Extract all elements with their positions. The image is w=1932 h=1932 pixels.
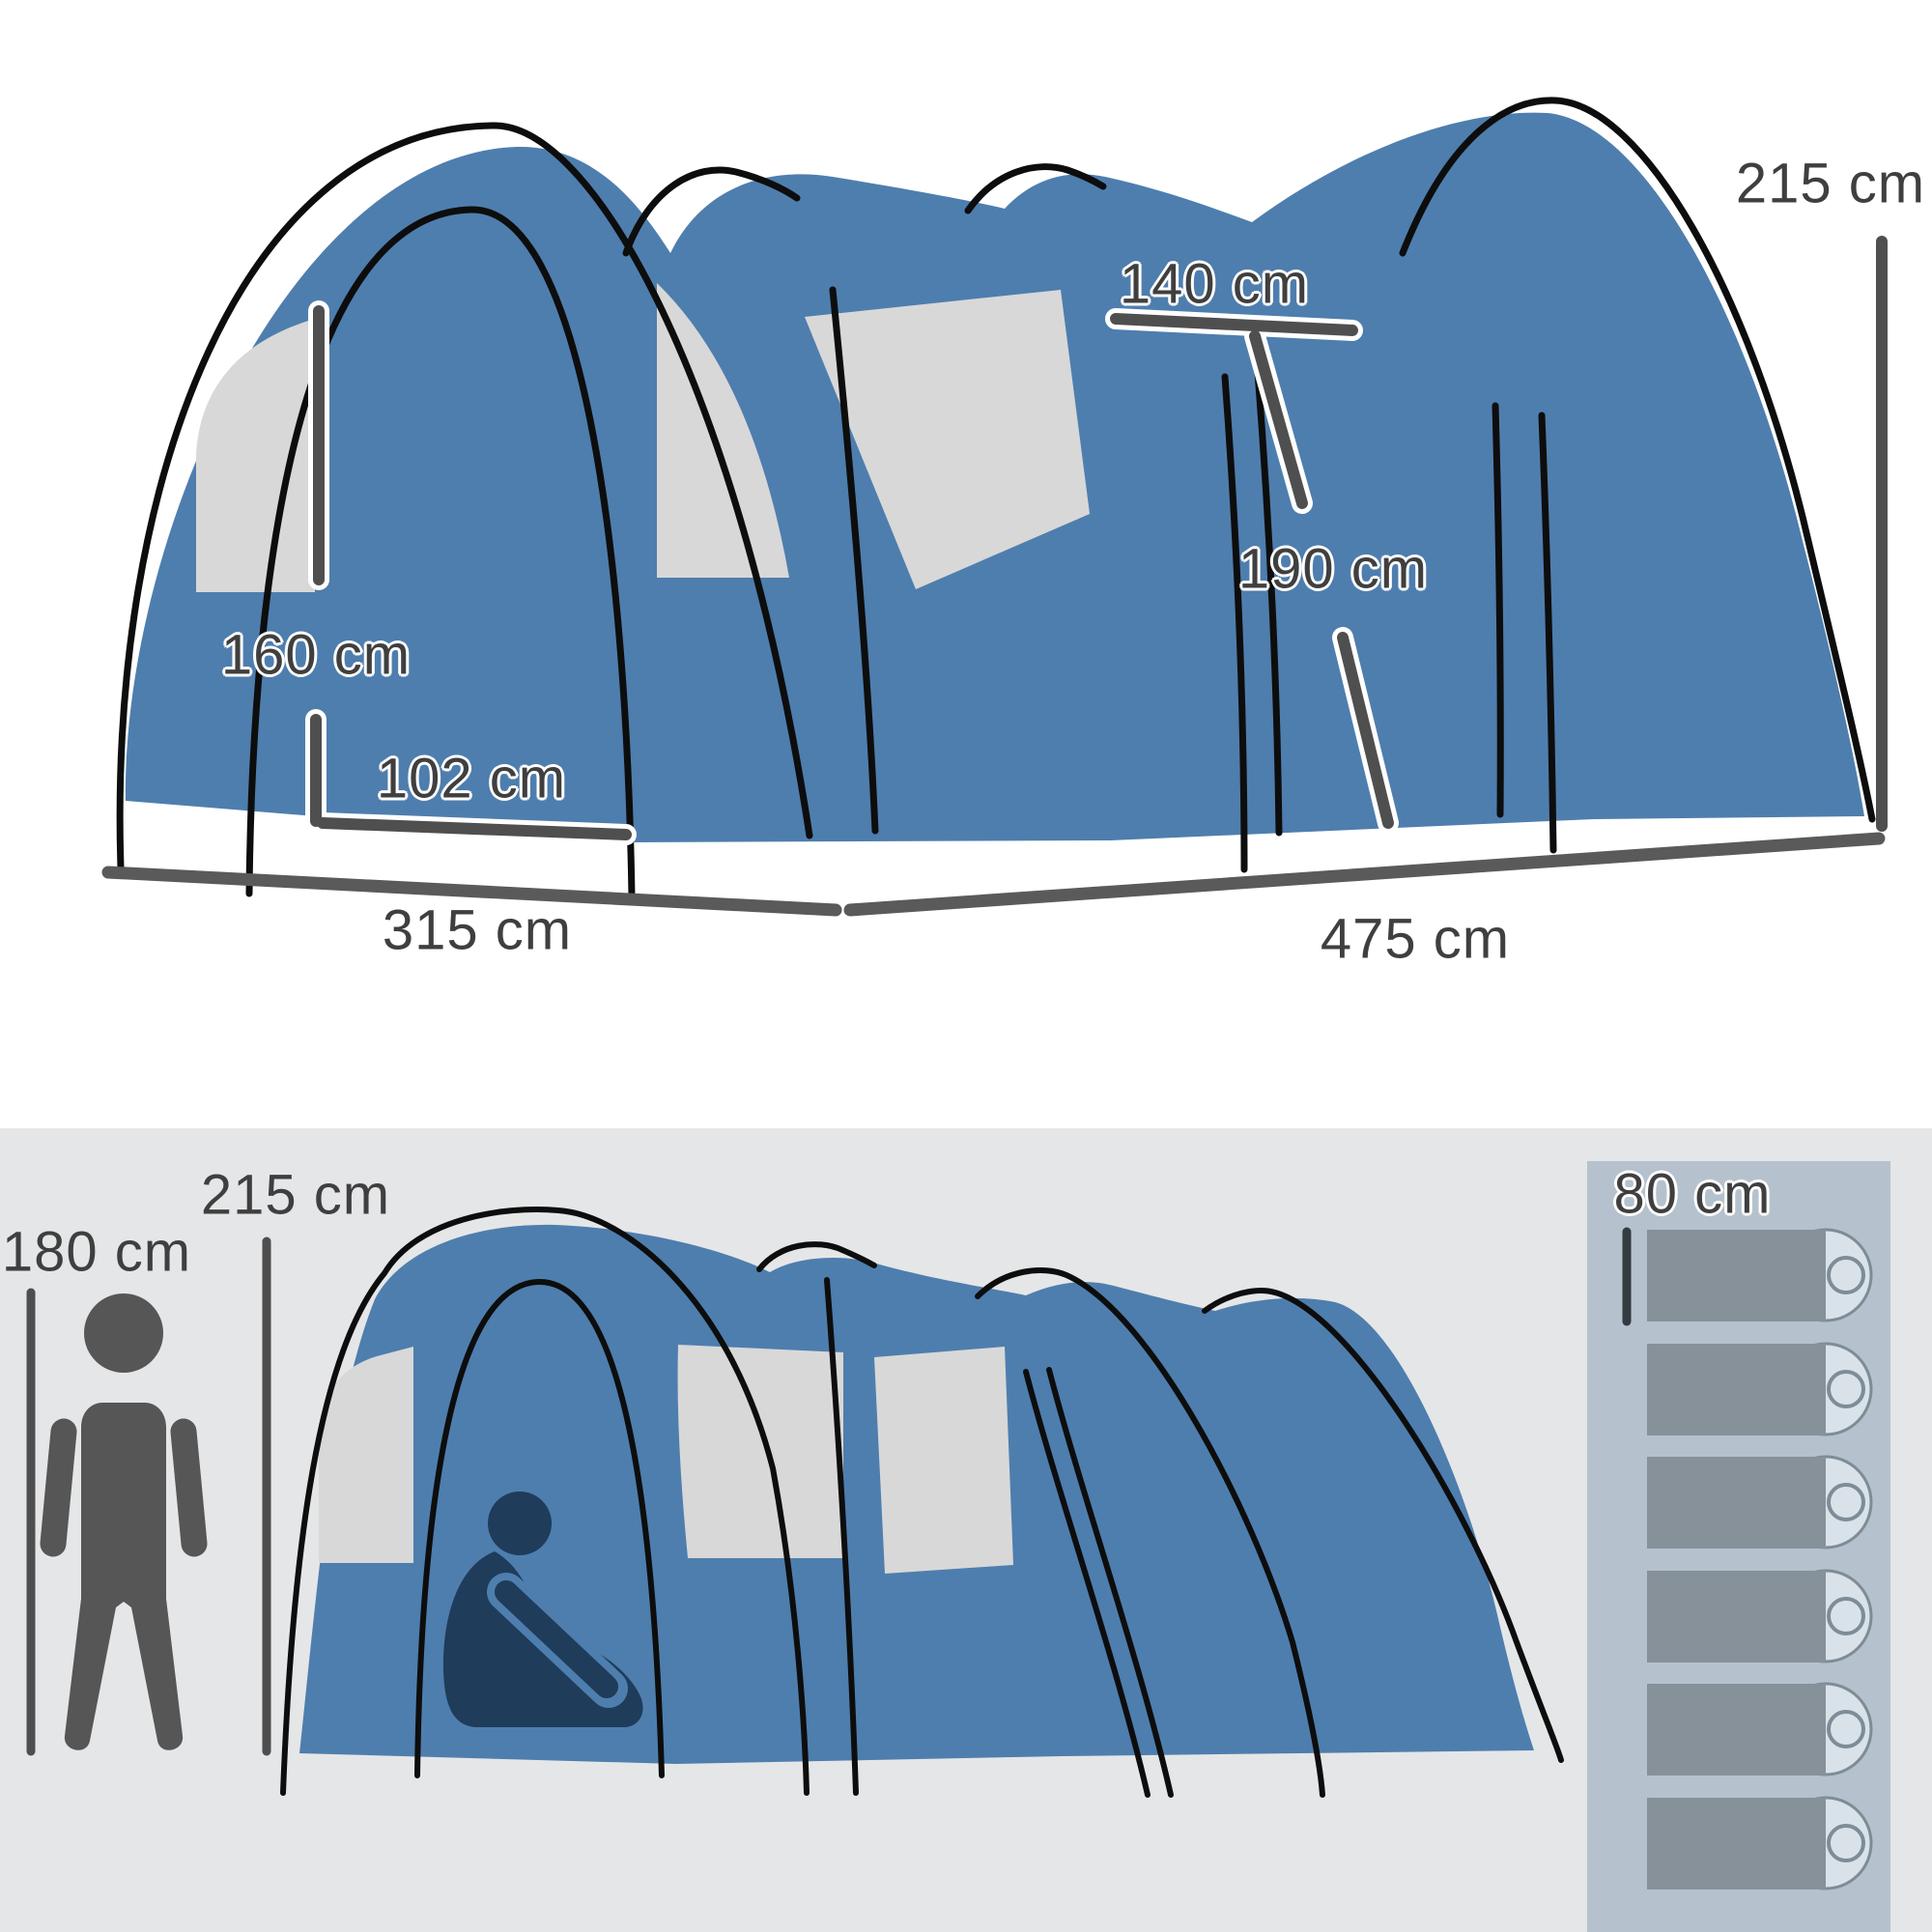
bag-body	[1647, 1230, 1826, 1321]
bag-pillow-icon	[1829, 1372, 1863, 1406]
sleeping-bag	[1647, 1798, 1871, 1889]
bag-pillow-icon	[1829, 1712, 1863, 1747]
sleeping-bag	[1647, 1684, 1871, 1776]
label-door-height: 160 cm	[221, 623, 411, 688]
side-tent-window-3	[874, 1347, 1013, 1574]
label-tent-height-side: 215 cm	[201, 1163, 390, 1228]
person-arm-right	[184, 1432, 194, 1544]
label-door-width: 102 cm	[377, 747, 566, 811]
label-side-length: 475 cm	[1321, 907, 1510, 972]
label-inner-height: 190 cm	[1238, 537, 1428, 602]
sleeping-bag	[1647, 1344, 1871, 1435]
sleeping-bag	[1647, 1571, 1871, 1662]
person-arm-left	[53, 1432, 64, 1544]
bag-pillow-icon	[1829, 1258, 1863, 1293]
bag-pillow-icon	[1829, 1485, 1863, 1520]
bag-pillow-icon	[1829, 1599, 1863, 1634]
front-left-window	[196, 319, 315, 592]
bag-body	[1647, 1457, 1826, 1548]
diagram-canvas	[0, 0, 1932, 1932]
bag-body	[1647, 1684, 1826, 1776]
tent-dimension-diagram: 215 cm 140 cm 190 cm 160 cm 102 cm 315 c…	[0, 0, 1932, 1932]
ground-line-side	[850, 838, 1879, 910]
sleeping-bag	[1647, 1457, 1871, 1548]
bag-body	[1647, 1344, 1826, 1435]
person-head	[84, 1293, 163, 1373]
sleeping-bag	[1647, 1230, 1871, 1321]
side-tent-window-2	[678, 1345, 843, 1558]
sleeping-bag-panel	[1587, 1161, 1890, 1932]
label-bag-width: 80 cm	[1614, 1162, 1772, 1227]
top-view-illustration	[108, 100, 1882, 910]
label-inner-width: 140 cm	[1120, 252, 1309, 317]
bag-body	[1647, 1571, 1826, 1662]
sitting-person-head	[488, 1492, 552, 1555]
label-rear-height: 215 cm	[1736, 152, 1925, 216]
bag-body	[1647, 1798, 1826, 1889]
label-person-height: 180 cm	[2, 1220, 191, 1285]
label-front-width: 315 cm	[383, 898, 572, 963]
bag-pillow-icon	[1829, 1826, 1863, 1861]
